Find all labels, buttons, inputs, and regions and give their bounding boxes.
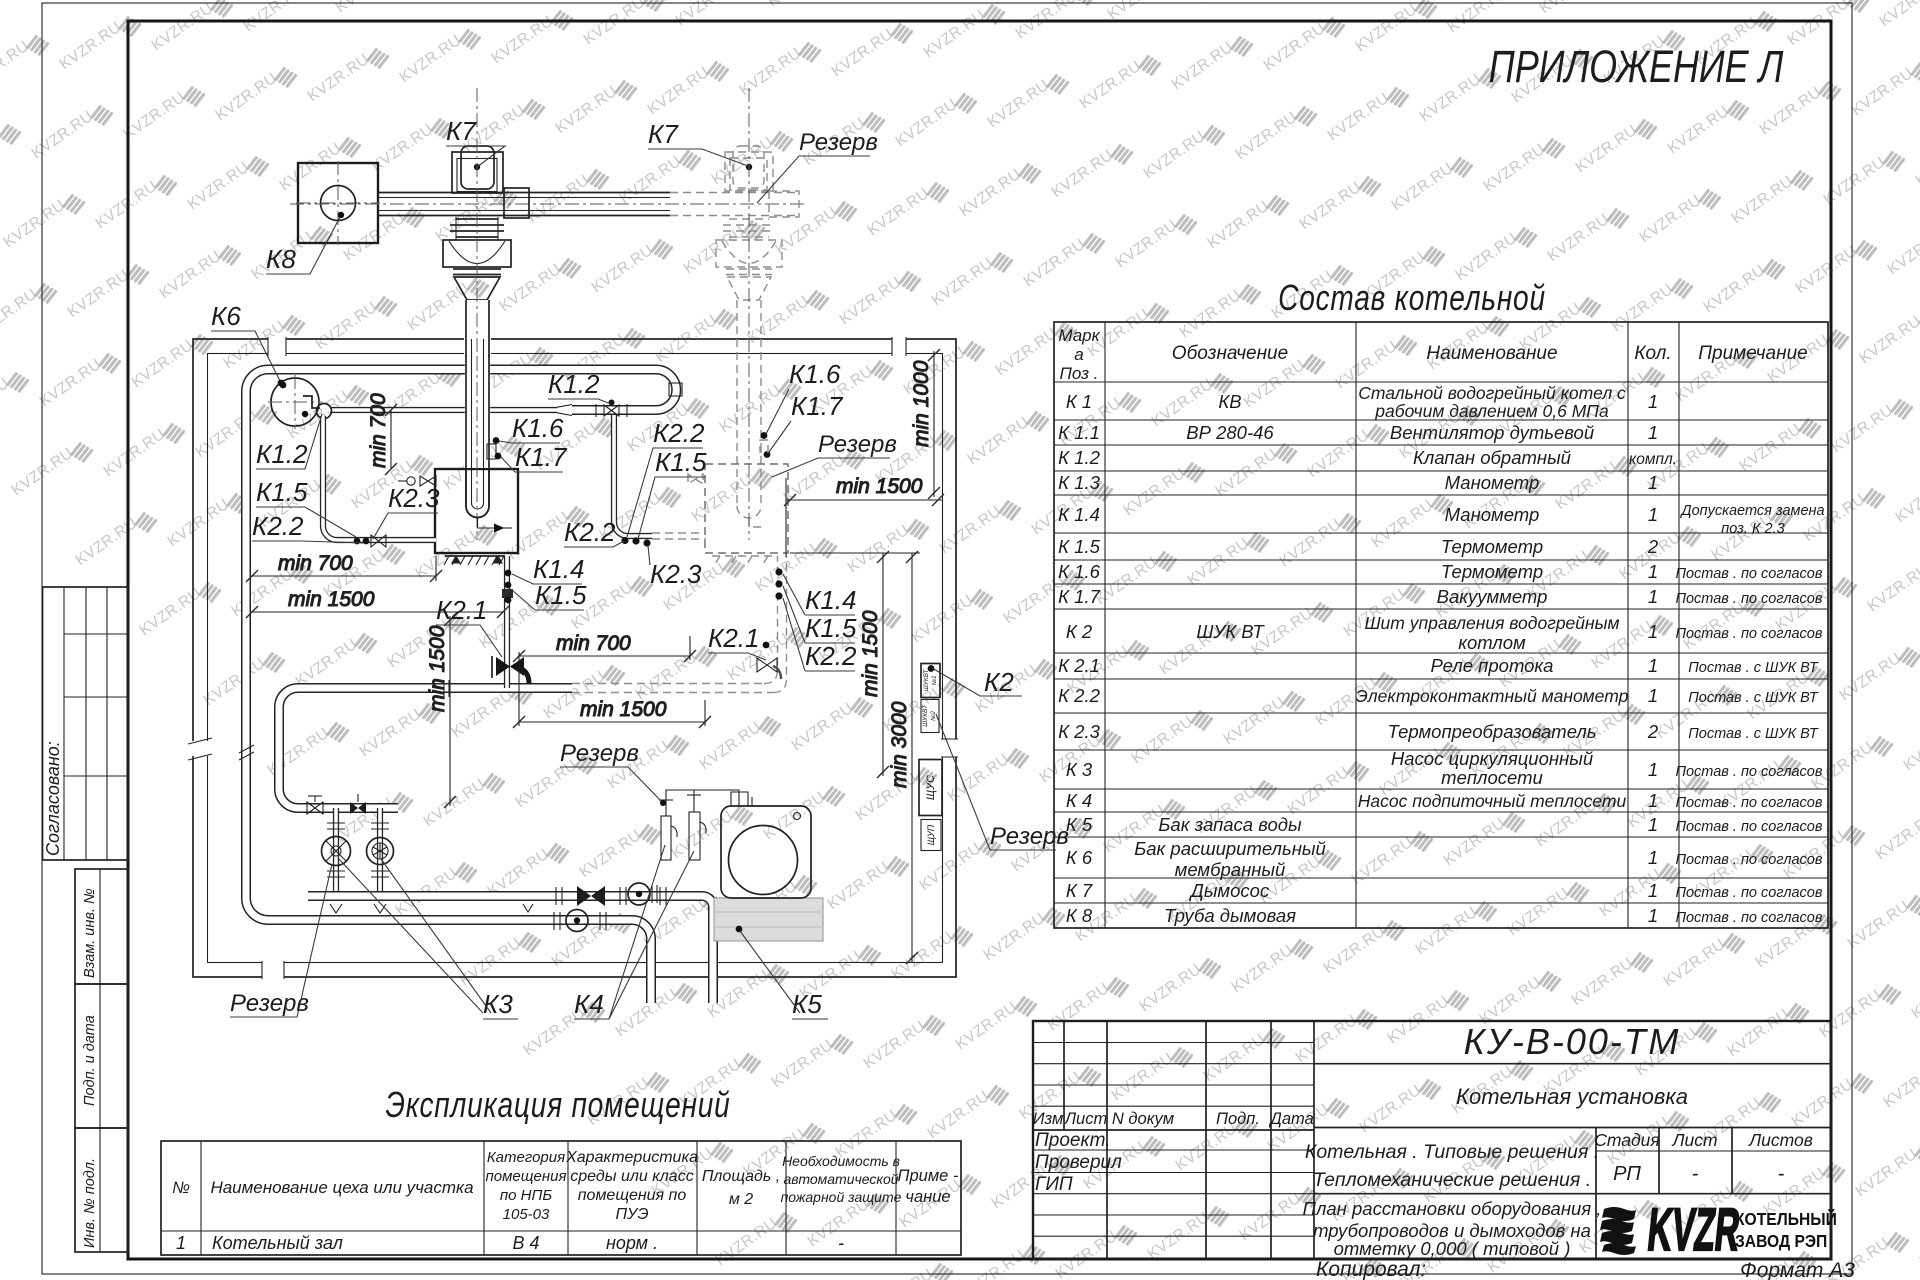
svg-text:К 1.4: К 1.4 xyxy=(1058,504,1100,525)
svg-text:1: 1 xyxy=(1648,685,1658,706)
svg-text:Примечание: Примечание xyxy=(1698,343,1807,364)
svg-text:Дымосос: Дымосос xyxy=(1189,880,1270,901)
svg-text:м 2: м 2 xyxy=(729,1191,753,1208)
svg-text:К6: К6 xyxy=(211,301,241,331)
svg-text:Бак запаса воды: Бак запаса воды xyxy=(1158,814,1302,835)
svg-text:1: 1 xyxy=(1648,655,1658,676)
svg-text:среды или класс: среды или класс xyxy=(570,1168,693,1185)
svg-text:Тепломеханические решения .: Тепломеханические решения . xyxy=(1313,1169,1591,1191)
svg-text:1: 1 xyxy=(1648,586,1658,607)
svg-text:1: 1 xyxy=(1648,472,1658,493)
svg-text:К2.2: К2.2 xyxy=(564,517,616,547)
svg-text:КОТЕЛЬНЫЙ: КОТЕЛЬНЫЙ xyxy=(1735,1209,1837,1229)
svg-text:рабочим давлением 0,6 МПа: рабочим давлением 0,6 МПа xyxy=(1374,401,1609,421)
svg-text:К 1.6: К 1.6 xyxy=(1058,561,1100,582)
svg-text:План расстановки оборудования: План расстановки оборудования , xyxy=(1303,1198,1602,1219)
svg-text:К2: К2 xyxy=(984,667,1014,697)
svg-text:ШУК ВТ: ШУК ВТ xyxy=(1196,621,1265,642)
svg-text:N докум: N докум xyxy=(1112,1110,1174,1128)
svg-text:Обозначение: Обозначение xyxy=(1172,343,1288,364)
svg-text:К 7: К 7 xyxy=(1066,880,1093,901)
svg-text:К 8: К 8 xyxy=(1066,905,1093,926)
svg-text:Постав . с ШУК ВТ: Постав . с ШУК ВТ xyxy=(1688,726,1819,742)
svg-text:К 1: К 1 xyxy=(1066,391,1092,412)
svg-text:К 4: К 4 xyxy=(1066,790,1092,811)
svg-text:Лист: Лист xyxy=(1064,1110,1107,1128)
svg-text:Постав . с ШУК ВТ: Постав . с ШУК ВТ xyxy=(1688,660,1819,676)
svg-text:KVZR: KVZR xyxy=(1645,1197,1743,1263)
svg-text:min 1000: min 1000 xyxy=(910,360,933,447)
svg-text:К1.6: К1.6 xyxy=(789,359,841,389)
svg-text:К1.2: К1.2 xyxy=(256,439,308,469)
svg-text:Изм: Изм xyxy=(1033,1110,1064,1128)
svg-text:К1.7: К1.7 xyxy=(515,442,568,472)
svg-text:1: 1 xyxy=(176,1233,186,1253)
svg-text:К1.2: К1.2 xyxy=(548,369,600,399)
svg-text:К 2.1: К 2.1 xyxy=(1058,655,1100,676)
svg-text:В 4: В 4 xyxy=(512,1233,539,1253)
svg-text:Постав . по согласов .: Постав . по согласов . xyxy=(1675,885,1830,901)
svg-text:min 700: min 700 xyxy=(278,552,353,575)
svg-text:Формат А3: Формат А3 xyxy=(1740,1259,1855,1280)
svg-text:К 1.7: К 1.7 xyxy=(1058,586,1100,607)
svg-text:2: 2 xyxy=(1647,721,1659,742)
svg-text:Котельная установка: Котельная установка xyxy=(1456,1084,1688,1109)
svg-text:Проверил: Проверил xyxy=(1035,1152,1122,1173)
svg-text:К 2.3: К 2.3 xyxy=(1058,721,1100,742)
svg-text:min 700: min 700 xyxy=(367,393,390,468)
svg-text:№: № xyxy=(172,1179,190,1197)
svg-text:1: 1 xyxy=(1648,422,1658,443)
svg-text:-: - xyxy=(1692,1163,1699,1185)
svg-text:105-03: 105-03 xyxy=(503,1206,550,1223)
svg-text:№2: №2 xyxy=(930,710,937,720)
svg-text:норм .: норм . xyxy=(606,1233,658,1253)
svg-text:ЩУП: ЩУП xyxy=(926,824,936,845)
svg-text:Проект.: Проект. xyxy=(1035,1130,1111,1151)
svg-text:1: 1 xyxy=(1648,759,1658,780)
svg-text:Характеристика: Характеристика xyxy=(565,1149,698,1166)
svg-text:Манометр: Манометр xyxy=(1445,504,1540,525)
svg-text:Резерв: Резерв xyxy=(230,990,309,1017)
svg-text:поз. К 2.3: поз. К 2.3 xyxy=(1721,521,1784,537)
svg-text:min 1500: min 1500 xyxy=(836,475,923,498)
svg-text:К2.2: К2.2 xyxy=(653,418,705,448)
svg-text:Вентилятор дутьевой: Вентилятор дутьевой xyxy=(1390,422,1594,443)
svg-text:К3: К3 xyxy=(483,989,513,1019)
svg-text:Стадия: Стадия xyxy=(1594,1130,1660,1150)
svg-text:К2.2: К2.2 xyxy=(805,641,857,671)
svg-text:Труба дымовая: Труба дымовая xyxy=(1164,905,1296,926)
svg-text:К1.5: К1.5 xyxy=(256,477,308,507)
svg-text:пожарной защите: пожарной защите xyxy=(781,1189,902,1205)
svg-text:Насос циркуляционный: Насос циркуляционный xyxy=(1391,748,1593,769)
svg-text:К 1.2: К 1.2 xyxy=(1058,447,1100,468)
svg-text:Вакуумметр: Вакуумметр xyxy=(1437,586,1548,607)
svg-text:К1.6: К1.6 xyxy=(512,413,564,443)
svg-text:Наименование: Наименование xyxy=(1426,343,1557,364)
svg-text:КУ-В-00-ТМ: КУ-В-00-ТМ xyxy=(1464,1021,1681,1062)
svg-text:Резерв: Резерв xyxy=(818,431,897,458)
svg-text:-: - xyxy=(1778,1163,1785,1185)
svg-text:Термометр: Термометр xyxy=(1441,536,1543,557)
svg-text:К 1.1: К 1.1 xyxy=(1058,422,1100,443)
svg-text:Экспликация помещений: Экспликация помещений xyxy=(385,1085,730,1125)
svg-text:min 1500: min 1500 xyxy=(580,698,667,721)
svg-text:по НПБ: по НПБ xyxy=(500,1187,552,1204)
svg-text:Бак расширительный: Бак расширительный xyxy=(1134,838,1326,859)
svg-text:Дата: Дата xyxy=(1268,1110,1314,1128)
svg-text:2: 2 xyxy=(1647,536,1659,557)
svg-text:К 3: К 3 xyxy=(1066,759,1093,780)
svg-text:Марк: Марк xyxy=(1058,326,1100,345)
svg-text:Реле протока: Реле протока xyxy=(1431,655,1554,676)
svg-text:Допускается замена: Допускается замена xyxy=(1679,503,1824,519)
svg-text:К1.5: К1.5 xyxy=(655,447,707,477)
svg-text:Необходимость в: Необходимость в xyxy=(782,1153,900,1169)
svg-text:Постав . с ШУК ВТ: Постав . с ШУК ВТ xyxy=(1688,690,1819,706)
svg-text:К 1.5: К 1.5 xyxy=(1058,536,1100,557)
svg-text:отметку 0,000 ( типовой ): отметку 0,000 ( типовой ) xyxy=(1334,1238,1571,1259)
svg-text:Подп.: Подп. xyxy=(1216,1110,1260,1128)
svg-text:К2.3: К2.3 xyxy=(388,483,440,513)
svg-text:Взам. инв. №: Взам. инв. № xyxy=(82,888,98,978)
svg-text:Лист: Лист xyxy=(1671,1130,1717,1150)
svg-text:Категория: Категория xyxy=(487,1149,565,1166)
svg-text:котлом: котлом xyxy=(1458,632,1526,653)
svg-text:а: а xyxy=(1074,345,1083,364)
svg-text:К5: К5 xyxy=(792,989,822,1019)
svg-text:ЩУС: ЩУС xyxy=(925,775,937,800)
svg-text:Подп. и дата: Подп. и дата xyxy=(82,1015,98,1106)
svg-text:Резерв: Резерв xyxy=(799,129,878,156)
svg-text:Постав . по согласов .: Постав . по согласов . xyxy=(1675,764,1830,780)
svg-text:К1.5: К1.5 xyxy=(805,613,857,643)
svg-text:К 5: К 5 xyxy=(1066,814,1093,835)
svg-text:Котельный зал: Котельный зал xyxy=(212,1233,343,1253)
svg-text:Приме -: Приме - xyxy=(898,1167,959,1185)
svg-text:1: 1 xyxy=(1648,880,1658,901)
svg-text:К8: К8 xyxy=(266,244,296,274)
svg-text:Термометр: Термометр xyxy=(1441,561,1543,582)
svg-text:К 2.2: К 2.2 xyxy=(1058,685,1100,706)
svg-text:Согласовано:: Согласовано: xyxy=(43,741,63,856)
svg-text:Электроконтактный манометр: Электроконтактный манометр xyxy=(1356,686,1629,706)
svg-text:чание: чание xyxy=(905,1188,950,1206)
svg-text:Постав . по согласов .: Постав . по согласов . xyxy=(1675,626,1830,642)
svg-text:К1.5: К1.5 xyxy=(535,580,587,610)
svg-text:Постав . по согласов .: Постав . по согласов . xyxy=(1675,819,1830,835)
svg-text:К 6: К 6 xyxy=(1066,847,1093,868)
svg-text:Шит управления водогрейным: Шит управления водогрейным xyxy=(1364,613,1619,633)
svg-text:К1.7: К1.7 xyxy=(791,391,844,421)
svg-text:Инв. № подл.: Инв. № подл. xyxy=(82,1158,98,1248)
svg-text:ПРИЛОЖЕНИЕ Л: ПРИЛОЖЕНИЕ Л xyxy=(1489,41,1784,92)
svg-text:ЗАВОД РЭП: ЗАВОД РЭП xyxy=(1735,1231,1827,1251)
svg-text:Кол.: Кол. xyxy=(1634,343,1671,364)
svg-text:РП: РП xyxy=(1613,1163,1641,1185)
svg-text:К2.1: К2.1 xyxy=(436,595,487,625)
svg-text:К1.4: К1.4 xyxy=(805,585,856,615)
svg-text:min 3000: min 3000 xyxy=(888,701,911,788)
svg-text:ВР 280-46: ВР 280-46 xyxy=(1186,422,1274,443)
svg-text:1: 1 xyxy=(1648,391,1658,412)
svg-text:теплосети: теплосети xyxy=(1441,767,1543,788)
svg-text:Постав . по согласов .: Постав . по согласов . xyxy=(1675,795,1830,811)
svg-text:К 1.3: К 1.3 xyxy=(1058,472,1100,493)
svg-text:min 1500: min 1500 xyxy=(288,588,375,611)
svg-text:1: 1 xyxy=(1648,561,1658,582)
svg-text:Площадь ,: Площадь , xyxy=(702,1168,780,1185)
svg-text:мембранный: мембранный xyxy=(1175,859,1286,880)
svg-text:1: 1 xyxy=(1648,847,1658,868)
svg-text:помещения по: помещения по xyxy=(578,1187,687,1204)
svg-text:Клапан обратный: Клапан обратный xyxy=(1413,447,1571,468)
svg-text:Насос подпиточный теплосети: Насос подпиточный теплосети xyxy=(1358,791,1627,811)
svg-text:К4: К4 xyxy=(574,989,604,1019)
svg-text:min 700: min 700 xyxy=(556,632,631,655)
svg-text:1: 1 xyxy=(1648,790,1658,811)
svg-text:компл.: компл. xyxy=(1629,451,1677,468)
svg-text:помещения: помещения xyxy=(486,1168,567,1185)
svg-text:ШУКВТ: ШУКВТ xyxy=(923,669,930,692)
svg-text:1: 1 xyxy=(1648,504,1658,525)
svg-text:min 1500: min 1500 xyxy=(426,625,449,712)
svg-text:К7: К7 xyxy=(446,116,477,146)
svg-text:Листов: Листов xyxy=(1748,1130,1813,1150)
svg-text:Постав . по согласов .: Постав . по согласов . xyxy=(1675,566,1830,582)
svg-text:Постав . по согласов .: Постав . по согласов . xyxy=(1675,910,1830,926)
svg-text:К 2: К 2 xyxy=(1066,621,1093,642)
svg-text:№1: №1 xyxy=(931,676,938,686)
svg-text:Копировал:: Копировал: xyxy=(1316,1258,1426,1280)
svg-text:Поз .: Поз . xyxy=(1060,364,1099,383)
svg-text:ШУКВТ: ШУКВТ xyxy=(922,704,929,727)
svg-text:Термопреобразователь: Термопреобразователь xyxy=(1387,721,1596,742)
svg-text:Состав котельной: Состав котельной xyxy=(1278,278,1546,318)
svg-text:Стальной водогрейный котел с: Стальной водогрейный котел с xyxy=(1358,383,1626,403)
svg-text:Наименование цеха или участк: Наименование цеха или участка xyxy=(210,1178,473,1197)
svg-text:Постав . по согласов .: Постав . по согласов . xyxy=(1675,591,1830,607)
svg-text:К7: К7 xyxy=(648,119,679,149)
svg-text:1: 1 xyxy=(1648,905,1658,926)
svg-text:1: 1 xyxy=(1648,621,1658,642)
svg-text:К2.3: К2.3 xyxy=(650,559,702,589)
svg-text:Манометр: Манометр xyxy=(1445,472,1540,493)
svg-text:К2.1: К2.1 xyxy=(708,623,759,653)
svg-text:min 1500: min 1500 xyxy=(859,610,882,697)
svg-text:ГИП: ГИП xyxy=(1035,1174,1073,1195)
svg-text:ПУЭ: ПУЭ xyxy=(615,1206,648,1223)
svg-text:автоматической: автоматической xyxy=(783,1171,898,1187)
svg-text:1: 1 xyxy=(1648,814,1658,835)
svg-text:Котельная . Типовые решения .: Котельная . Типовые решения . xyxy=(1305,1141,1599,1163)
svg-text:К2.2: К2.2 xyxy=(252,511,304,541)
svg-text:-: - xyxy=(838,1233,844,1253)
svg-text:Постав . по согласов .: Постав . по согласов . xyxy=(1675,852,1830,868)
svg-text:КВ: КВ xyxy=(1218,391,1241,412)
svg-text:Резерв: Резерв xyxy=(560,740,639,767)
